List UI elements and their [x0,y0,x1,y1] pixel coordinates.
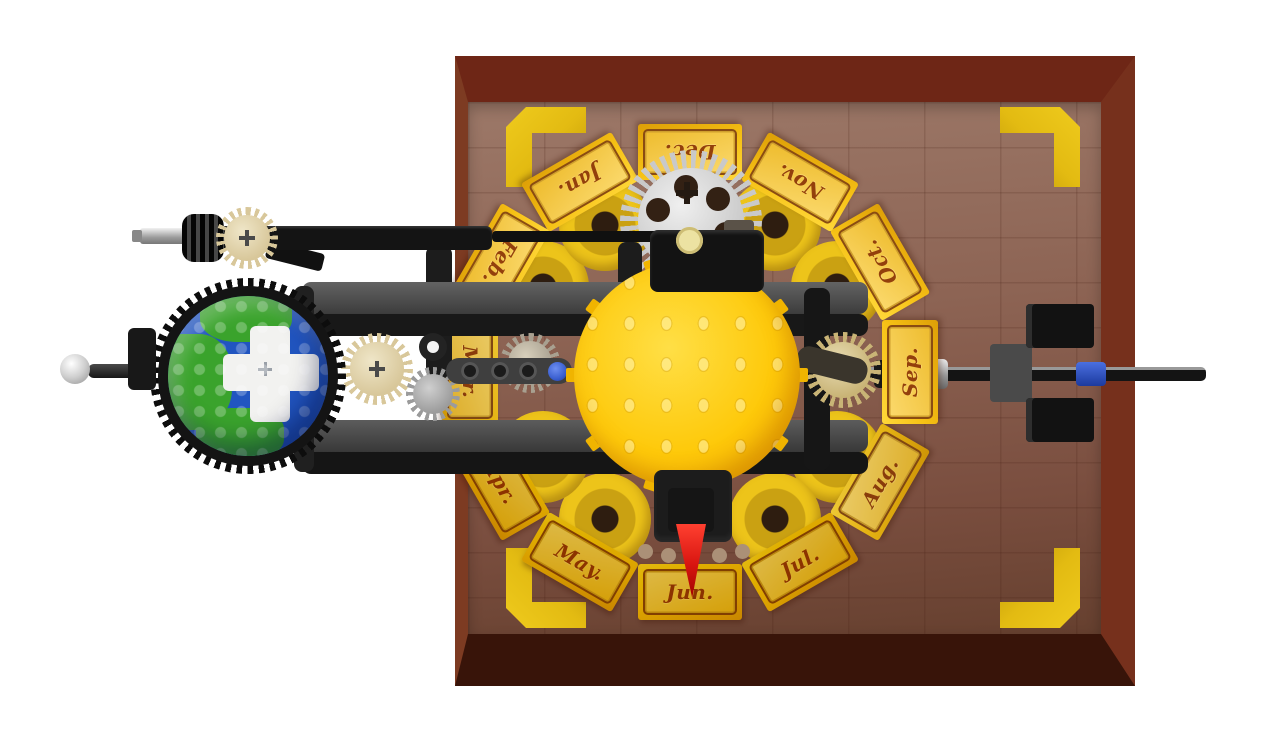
month-plaque: Sep. [887,325,933,419]
bearing-bar-top [1026,304,1094,348]
month-label: Sep. [898,347,922,397]
month-label: Oct. [858,235,903,288]
sun-assembly [574,262,800,488]
orrery-scene: Jan. Feb. Mar. Apr. May. Jun. Jul. [0,0,1265,737]
sun-sphere [574,262,800,488]
bearing-bar-bottom [1026,398,1094,442]
gear-hole [706,187,730,211]
axle-cross [239,230,255,246]
pin-hole [427,341,439,353]
board-stud [661,548,676,563]
blue-pin [548,362,567,381]
link-hole [491,362,509,380]
axle-tip [132,230,142,242]
month-label: Jul. [776,541,823,582]
connector-disc [419,333,447,361]
axle-cross [369,361,385,377]
crank-block [128,328,156,390]
sun-top-bracket [650,230,764,292]
earth-sphere [168,296,328,456]
blue-axle-connector [1076,362,1106,386]
axle-cross-hole [676,182,698,204]
link-hole [461,362,479,380]
crank-handle-ball [60,354,90,384]
month-tile: Sep. [882,320,938,424]
month-label: Jan. [554,160,606,204]
gear-hole [646,198,670,222]
earth-globe-assembly [150,278,346,474]
sphere-shading [168,296,328,456]
pale-yellow-pin [676,227,703,254]
board-stud [712,548,727,563]
bearing-plate [990,344,1032,402]
board-stud [735,544,750,559]
month-label: Nov. [772,159,827,205]
tan-gear-top-left [216,207,278,269]
upper-axle [492,231,658,242]
gear-body [413,374,453,414]
link-hole [519,362,537,380]
axle-stub [140,228,186,244]
month-label: May. [551,538,609,585]
tan-gear-mid [341,333,413,405]
board-stud [638,544,653,559]
